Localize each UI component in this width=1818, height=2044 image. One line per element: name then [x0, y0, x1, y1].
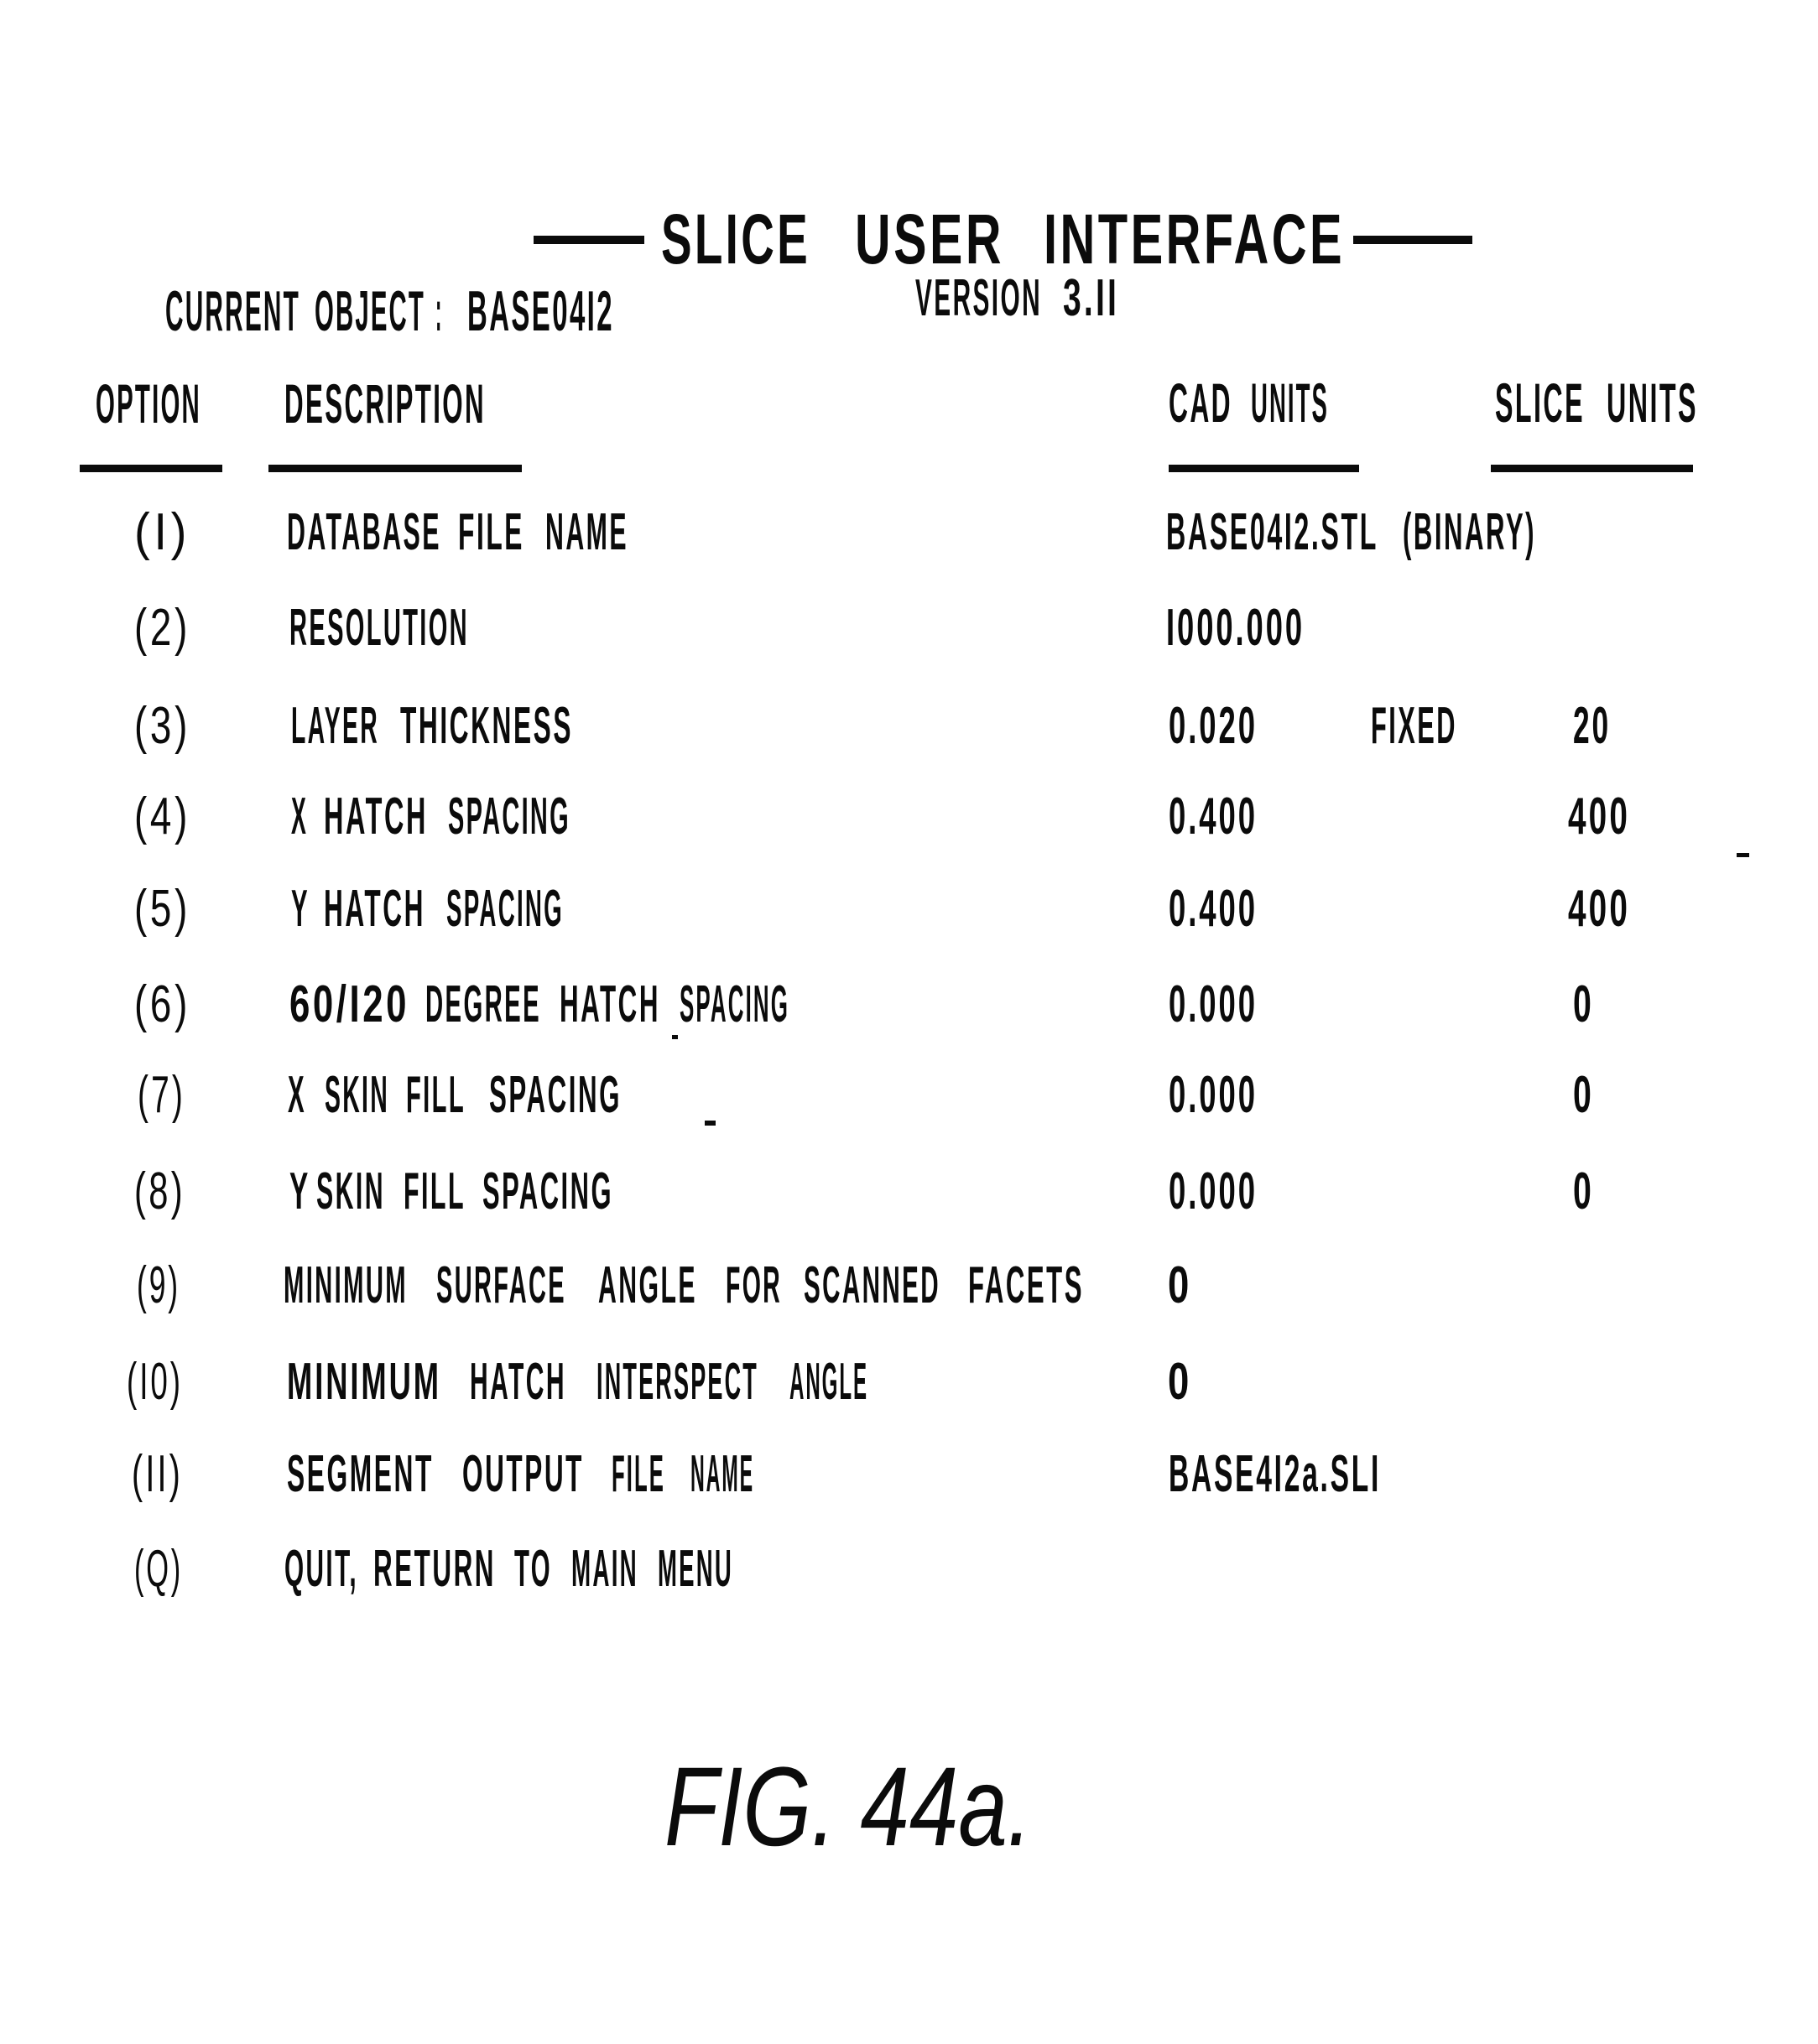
svg-text:0.000: 0.000: [1169, 975, 1258, 1033]
svg-text:(8): (8): [134, 1162, 185, 1220]
svg-text:3.II: 3.II: [1063, 269, 1119, 327]
svg-text:20: 20: [1573, 697, 1611, 755]
svg-text:0.000: 0.000: [1169, 1162, 1258, 1220]
svg-text:SPACING: SPACING: [482, 1162, 613, 1220]
svg-text:0.000: 0.000: [1169, 1066, 1258, 1124]
svg-text:FIG. 44a.: FIG. 44a.: [664, 1745, 1032, 1870]
svg-text:TO: TO: [514, 1540, 552, 1598]
svg-text:OPTION: OPTION: [96, 372, 201, 434]
svg-text:THICKNESS: THICKNESS: [400, 697, 573, 755]
svg-text:FILE: FILE: [458, 503, 524, 561]
svg-text:OBJECT: OBJECT: [315, 279, 425, 343]
svg-text:X: X: [291, 788, 308, 845]
svg-text:BASE04I2.STL: BASE04I2.STL: [1166, 503, 1378, 561]
svg-text::: :: [435, 279, 443, 343]
svg-text:0.020: 0.020: [1169, 697, 1258, 755]
svg-text:60/I20: 60/I20: [289, 975, 409, 1033]
svg-text:(4): (4): [134, 788, 190, 845]
svg-text:SKIN: SKIN: [325, 1066, 389, 1124]
svg-text:SLICE: SLICE: [1495, 372, 1585, 434]
svg-text:SPACING: SPACING: [446, 880, 564, 938]
svg-text:400: 400: [1568, 788, 1630, 845]
svg-text:NAME: NAME: [690, 1445, 754, 1503]
svg-text:X: X: [288, 1066, 306, 1124]
svg-text:SEGMENT: SEGMENT: [287, 1445, 434, 1503]
svg-text:Y: Y: [291, 880, 310, 938]
svg-text:(I): (I): [134, 503, 190, 561]
svg-text:DESCRIPTION: DESCRIPTION: [284, 372, 486, 434]
svg-text:(7): (7): [138, 1066, 185, 1124]
svg-text:MINIMUM: MINIMUM: [287, 1353, 441, 1411]
svg-text:(6): (6): [134, 975, 190, 1033]
svg-text:ANGLE: ANGLE: [789, 1353, 868, 1411]
svg-text:0.400: 0.400: [1169, 880, 1258, 938]
svg-text:I000.000: I000.000: [1166, 599, 1305, 657]
svg-text:(3): (3): [134, 697, 190, 755]
svg-text:CAD: CAD: [1169, 372, 1232, 434]
svg-text:DATABASE: DATABASE: [287, 503, 441, 561]
svg-text:(2): (2): [134, 599, 190, 657]
svg-text:UNITS: UNITS: [1251, 372, 1329, 434]
svg-text:QUIT,: QUIT,: [284, 1540, 358, 1598]
svg-text:SKIN: SKIN: [316, 1162, 385, 1220]
svg-text:MINIMUM: MINIMUM: [284, 1256, 408, 1314]
svg-text:0.400: 0.400: [1169, 788, 1258, 845]
svg-text:HATCH: HATCH: [560, 975, 660, 1033]
svg-text:SURFACE: SURFACE: [436, 1256, 566, 1314]
svg-text:UNITS: UNITS: [1607, 372, 1698, 434]
svg-text:Y: Y: [289, 1162, 310, 1220]
svg-text:BASE4I2a.SLI: BASE4I2a.SLI: [1169, 1445, 1381, 1503]
svg-text:INTERSPECT: INTERSPECT: [596, 1353, 758, 1411]
svg-text:FILL: FILL: [406, 1066, 466, 1124]
svg-text:MAIN: MAIN: [571, 1540, 638, 1598]
svg-text:400: 400: [1568, 880, 1630, 938]
svg-text:FACETS: FACETS: [968, 1256, 1084, 1314]
svg-text:MENU: MENU: [658, 1540, 733, 1598]
svg-text:HATCH: HATCH: [324, 788, 428, 845]
svg-text:RESOLUTION: RESOLUTION: [289, 599, 469, 657]
svg-text:FILL: FILL: [404, 1162, 466, 1220]
svg-text:HATCH: HATCH: [470, 1353, 566, 1411]
svg-text:OUTPUT: OUTPUT: [462, 1445, 584, 1503]
svg-text:0: 0: [1168, 1353, 1192, 1411]
svg-text:(I0): (I0): [127, 1353, 183, 1411]
svg-text:RETURN: RETURN: [373, 1540, 496, 1598]
svg-text:0: 0: [1168, 1256, 1192, 1314]
svg-text:SCANNED: SCANNED: [804, 1256, 940, 1314]
svg-text:SLICE: SLICE: [661, 200, 810, 278]
svg-text:FILE: FILE: [612, 1445, 665, 1503]
svg-text:SPACING: SPACING: [448, 788, 570, 845]
svg-text:FIXED: FIXED: [1371, 697, 1457, 755]
svg-text:HATCH: HATCH: [324, 880, 425, 938]
svg-text:0: 0: [1573, 975, 1594, 1033]
svg-text:(II): (II): [132, 1445, 183, 1503]
svg-text:(BINARY): (BINARY): [1403, 503, 1536, 561]
svg-text:NAME: NAME: [545, 503, 628, 561]
svg-text:LAYER: LAYER: [291, 697, 379, 755]
svg-text:(9): (9): [137, 1256, 180, 1314]
svg-text:0: 0: [1573, 1162, 1594, 1220]
svg-text:(5): (5): [134, 880, 190, 938]
svg-text:VERSION: VERSION: [915, 269, 1042, 327]
svg-text:ANGLE: ANGLE: [598, 1256, 697, 1314]
svg-text:BASE04I2: BASE04I2: [467, 279, 614, 343]
svg-text:INTERFACE: INTERFACE: [1044, 200, 1345, 278]
svg-text:(Q): (Q): [134, 1540, 183, 1598]
svg-text:USER: USER: [855, 200, 1004, 278]
svg-text:SPACING: SPACING: [489, 1066, 622, 1124]
svg-text:FOR: FOR: [726, 1256, 782, 1314]
svg-text:0: 0: [1573, 1066, 1594, 1124]
svg-text:DEGREE: DEGREE: [425, 975, 541, 1033]
svg-text:CURRENT: CURRENT: [165, 279, 300, 343]
svg-text:SPACING: SPACING: [680, 975, 789, 1033]
